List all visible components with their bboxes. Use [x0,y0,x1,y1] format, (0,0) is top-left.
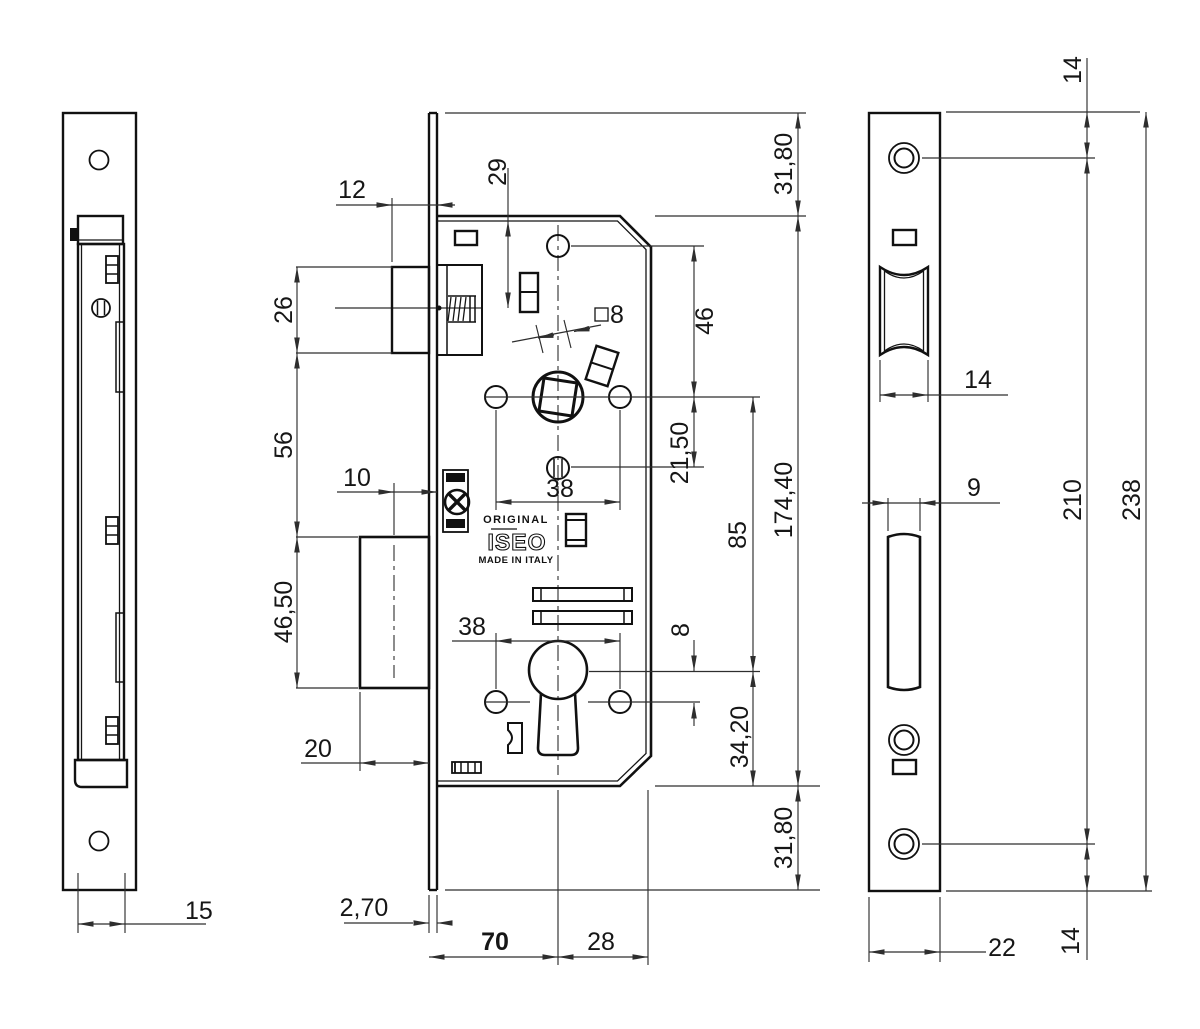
latch-bolt [392,267,429,353]
dim-bolt-height: 46,50 [270,581,298,644]
dim-latch-height: 26 [270,296,298,324]
dim-cyl-bottom: 34,20 [726,706,754,769]
latch-spring [448,296,476,322]
brand-original: ORIGINAL [483,514,549,526]
detent-part [586,346,619,386]
faceplate-dimensions: 14 210 14 238 14 9 22 [862,56,1152,962]
svg-text:8: 8 [610,301,624,329]
side-bottom-screw-hole [90,832,109,851]
dim-hole-spindle: 46 [691,307,719,335]
faceplate-top-slot [893,230,916,245]
faceplate-cylinder-screw [889,725,919,755]
dim-plate-thickness: 2,70 [340,894,389,922]
dim-latch-axis: 29 [484,158,512,186]
hook-part [508,723,522,753]
dim-spacing-top: 38 [546,475,574,503]
dim-latch-gap: 56 [270,431,298,459]
two-cell-part-upper [520,273,538,312]
dim-top-margin: 31,80 [770,133,798,196]
faceplate-screw [443,470,469,532]
guide-slot-lower [533,611,632,624]
faceplate-bottom-screw [889,829,919,859]
side-screw [92,299,110,317]
lock-body-view: ORIGINAL ISEO MADE IN ITALY [270,113,820,965]
side-connector-3 [106,717,118,744]
dim-spindle-cyl: 85 [724,521,752,549]
faceplate-view: 14 210 14 238 14 9 22 [862,56,1152,962]
side-connector-2 [106,517,118,544]
dim-bottom-margin: 31,80 [770,807,798,870]
dim-depth: 28 [587,928,615,956]
dim-spindle-screw: 21,50 [666,422,694,485]
faceplate-latch-opening [880,267,928,355]
dim-case-height: 174,40 [770,462,798,538]
side-top-screw-hole [90,151,109,170]
dim-latch-protrusion: 12 [338,176,366,204]
dim-side-thickness: 15 [185,897,213,925]
dim-fp-screw-spacing: 210 [1059,479,1087,521]
brand-name: ISEO [488,529,547,555]
top-slot-part [455,231,477,245]
dim-spacing-bottom: 38 [458,613,486,641]
faceplate-bolt-opening [888,534,920,690]
faceplate-bottom-slot [893,760,916,774]
side-connector-1 [106,256,118,283]
dim-fp-top-screw: 14 [1059,56,1087,84]
faceplate-top-screw [889,143,919,173]
technical-drawing-page: 15 [0,0,1200,1029]
side-bottom-cap [75,760,127,787]
side-view: 15 [63,113,213,933]
dim-backset: 70 [481,928,509,956]
dim-bolt-protrusion: 20 [304,735,332,763]
dim-fp-latch-width: 14 [964,366,992,394]
lock-drawing: 15 [0,0,1200,1029]
brand-logo: ORIGINAL ISEO MADE IN ITALY [478,514,553,566]
guide-slot-upper [533,588,632,601]
side-tab [70,228,78,241]
dim-spindle-square: 8 [512,301,624,353]
segmented-part [452,762,481,773]
dim-bolt-axis-offset: 10 [343,464,371,492]
brand-made-in: MADE IN ITALY [478,555,553,566]
dim-fp-bolt-width: 9 [967,474,981,502]
faceplate-edge [429,113,437,890]
two-cell-part-lower [566,514,586,546]
dim-fp-height: 238 [1118,479,1146,521]
dim-fp-width: 22 [988,934,1016,962]
dim-cyl-hole: 8 [667,623,695,637]
dim-fp-bottom-screw: 14 [1057,927,1085,955]
